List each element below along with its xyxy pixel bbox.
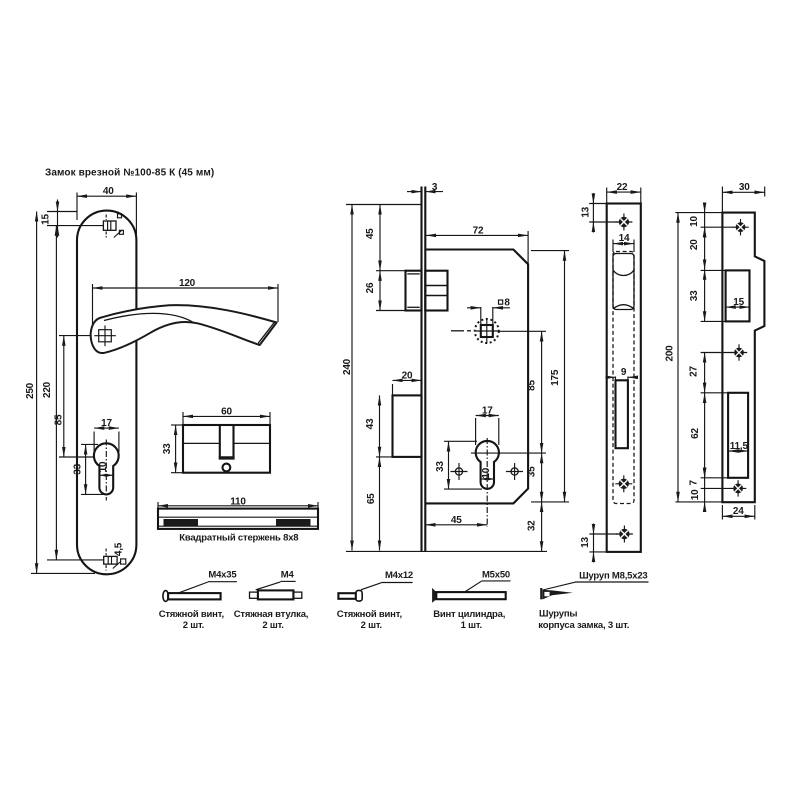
svg-text:32: 32 <box>527 520 538 531</box>
svg-text:10: 10 <box>98 461 109 472</box>
svg-text:Стяжной винт,: Стяжной винт, <box>337 609 402 620</box>
svg-text:22: 22 <box>617 182 628 193</box>
svg-text:250: 250 <box>25 382 36 399</box>
svg-text:11,5: 11,5 <box>730 441 749 452</box>
svg-text:2 шт.: 2 шт. <box>361 620 382 631</box>
svg-text:40: 40 <box>103 186 114 197</box>
svg-text:1 шт.: 1 шт. <box>461 620 482 631</box>
svg-text:65: 65 <box>366 493 377 504</box>
svg-text:17: 17 <box>482 406 493 417</box>
svg-text:13: 13 <box>580 537 591 548</box>
svg-text:120: 120 <box>179 278 196 289</box>
svg-text:8: 8 <box>504 298 510 309</box>
svg-text:175: 175 <box>550 369 561 386</box>
svg-text:33: 33 <box>73 463 84 474</box>
svg-text:33: 33 <box>689 290 700 301</box>
svg-text:М4х35: М4х35 <box>208 570 237 581</box>
svg-text:85: 85 <box>54 414 65 425</box>
svg-text:45: 45 <box>365 228 376 239</box>
svg-text:3: 3 <box>432 182 438 193</box>
svg-text:7: 7 <box>689 479 700 485</box>
svg-text:4,5: 4,5 <box>114 542 125 556</box>
svg-text:корпуса замка, 3 шт.: корпуса замка, 3 шт. <box>538 620 629 631</box>
svg-text:220: 220 <box>42 381 53 398</box>
svg-text:Стяжная втулка,: Стяжная втулка, <box>234 609 308 620</box>
svg-text:43: 43 <box>365 418 376 429</box>
svg-text:72: 72 <box>473 226 484 237</box>
svg-text:62: 62 <box>690 428 701 439</box>
svg-text:10: 10 <box>689 216 700 227</box>
svg-text:33: 33 <box>435 461 446 472</box>
svg-text:Замок врезной №100-85 К (45 мм: Замок врезной №100-85 К (45 мм) <box>45 168 214 179</box>
svg-text:10: 10 <box>690 489 701 500</box>
svg-text:30: 30 <box>739 182 750 193</box>
svg-text:33: 33 <box>162 443 173 454</box>
svg-text:27: 27 <box>689 366 700 377</box>
svg-text:Шурупы: Шурупы <box>539 608 577 619</box>
svg-text:13: 13 <box>580 206 591 217</box>
svg-text:М5х50: М5х50 <box>482 569 510 580</box>
svg-text:15: 15 <box>41 214 52 225</box>
svg-text:85: 85 <box>527 380 538 391</box>
svg-text:9: 9 <box>621 367 627 378</box>
svg-text:20: 20 <box>402 370 413 381</box>
svg-text:10: 10 <box>481 467 492 478</box>
svg-text:14: 14 <box>619 233 630 244</box>
svg-text:2 шт.: 2 шт. <box>183 620 204 631</box>
svg-text:М4: М4 <box>281 570 295 581</box>
svg-text:М4х12: М4х12 <box>385 570 413 581</box>
svg-text:Шуруп М8,5х23: Шуруп М8,5х23 <box>579 571 647 582</box>
svg-text:35: 35 <box>527 466 538 477</box>
svg-text:Винт цилиндра,: Винт цилиндра, <box>433 609 505 620</box>
svg-text:26: 26 <box>365 282 376 293</box>
svg-text:45: 45 <box>451 515 462 526</box>
svg-text:2 шт.: 2 шт. <box>262 620 283 631</box>
svg-text:200: 200 <box>665 345 676 362</box>
svg-text:60: 60 <box>221 406 232 417</box>
svg-text:110: 110 <box>230 496 246 507</box>
svg-text:Стяжной винт,: Стяжной винт, <box>159 609 224 620</box>
svg-text:20: 20 <box>689 239 700 250</box>
svg-text:240: 240 <box>342 358 353 375</box>
svg-text:24: 24 <box>733 506 744 517</box>
svg-text:15: 15 <box>733 297 744 308</box>
svg-text:17: 17 <box>101 418 112 429</box>
svg-text:Квадратный стержень 8х8: Квадратный стержень 8х8 <box>179 533 298 544</box>
